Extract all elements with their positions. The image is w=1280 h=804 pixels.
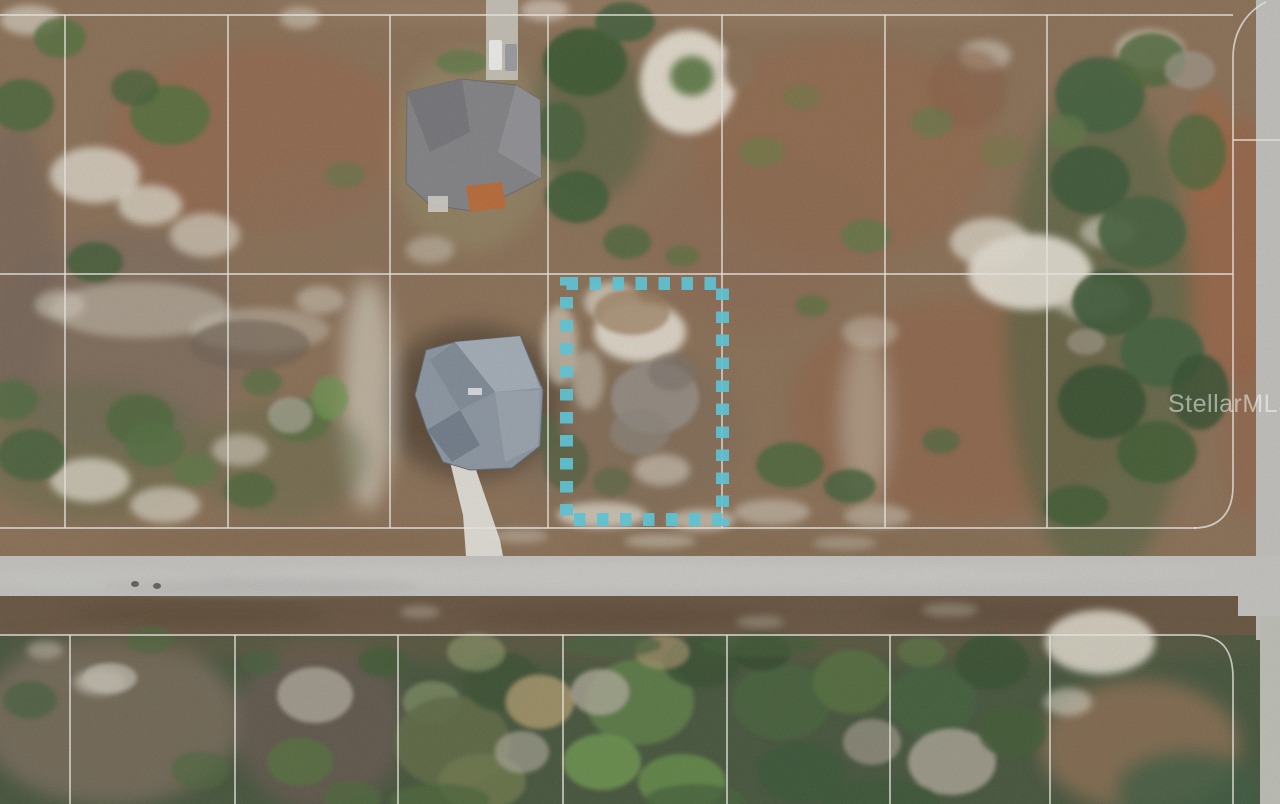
satellite-image: StellarMLS	[0, 0, 1280, 804]
aerial-lot-photo: StellarMLS	[0, 0, 1280, 804]
photo-grain-light	[0, 0, 1280, 804]
watermark-text: StellarMLS	[1168, 390, 1280, 418]
